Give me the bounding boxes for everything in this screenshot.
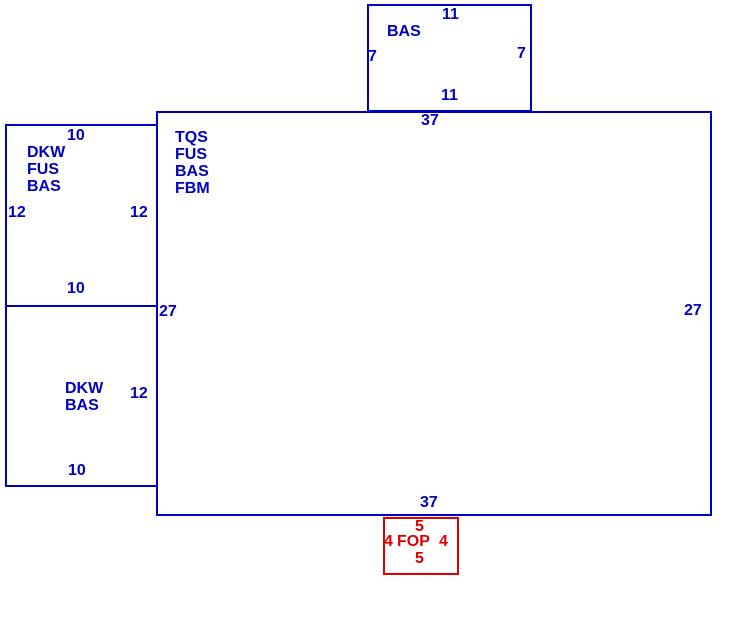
dim-label-left-upper-right: 12 <box>130 205 148 221</box>
dim-label-main-bottom: 37 <box>420 495 438 511</box>
dim-label-main-right: 27 <box>684 303 702 319</box>
dim-label-left-upper-left: 12 <box>8 205 26 221</box>
dim-label-porch-left: 4 <box>384 534 393 550</box>
area-label-main-line1: TQS <box>175 129 210 146</box>
area-label-main-line3: BAS <box>175 163 210 180</box>
dim-label-addition-left: 7 <box>368 49 377 65</box>
area-label-left-upper-line2: FUS <box>27 161 65 178</box>
area-label-left-upper-line3: BAS <box>27 178 65 195</box>
dim-label-addition-right: 7 <box>517 46 526 62</box>
sketch-canvas: 11 BAS 7 7 11 37 TQS FUS BAS FBM 27 27 3… <box>0 0 755 620</box>
dim-label-addition-bottom: 11 <box>441 88 458 104</box>
area-label-main: TQS FUS BAS FBM <box>175 129 210 197</box>
dim-label-main-top: 37 <box>421 113 439 129</box>
dim-label-porch-right: 4 <box>439 534 448 550</box>
area-label-left-lower: DKW BAS <box>65 380 103 414</box>
dim-label-addition-top: 11 <box>442 7 459 23</box>
dim-label-main-left: 27 <box>159 304 177 320</box>
dim-label-left-lower-right: 12 <box>130 386 148 402</box>
area-label-left-lower-line1: DKW <box>65 380 103 397</box>
area-label-addition: BAS <box>387 24 421 40</box>
dim-label-left-upper-top: 10 <box>67 128 85 144</box>
dim-label-left-upper-bottom: 10 <box>67 281 85 297</box>
dim-label-left-lower-bottom: 10 <box>68 463 86 479</box>
area-label-left-lower-line2: BAS <box>65 397 103 414</box>
area-label-left-upper-line1: DKW <box>27 144 65 161</box>
area-label-main-line2: FUS <box>175 146 210 163</box>
area-label-porch: FOP <box>397 534 430 550</box>
area-label-main-line4: FBM <box>175 180 210 197</box>
area-outline-main[interactable] <box>156 111 712 516</box>
area-label-left-upper: DKW FUS BAS <box>27 144 65 195</box>
dim-label-porch-bottom: 5 <box>415 551 424 567</box>
